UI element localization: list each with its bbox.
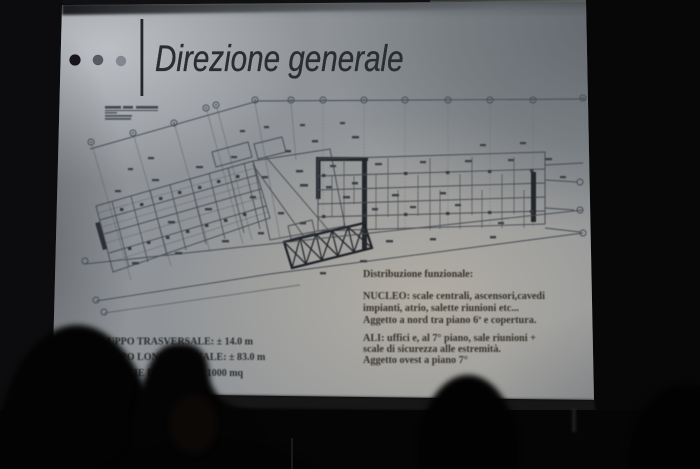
svg-text:impianti, atrio, salette riuni: impianti, atrio, salette riunioni etc...	[363, 303, 519, 314]
svg-text:NUCLEO: scale centrali, ascens: NUCLEO: scale centrali, ascensori,cavedi	[363, 291, 545, 302]
svg-text:Aggetto a nord tra piano 6ª e: Aggetto a nord tra piano 6ª e copertura.	[363, 315, 537, 326]
svg-text:Distribuzione funzionale:: Distribuzione funzionale:	[363, 269, 473, 280]
svg-text:ALI: uffici e, al 7° piano, sa: ALI: uffici e, al 7° piano, sale riunion…	[363, 333, 536, 344]
svg-text:scale di sicurezza alle estrem: scale di sicurezza alle estremità.	[363, 344, 501, 355]
svg-text:Aggetto ovest a piano 7°: Aggetto ovest a piano 7°	[363, 355, 468, 366]
svg-text:Direzione generale: Direzione generale	[155, 38, 404, 80]
